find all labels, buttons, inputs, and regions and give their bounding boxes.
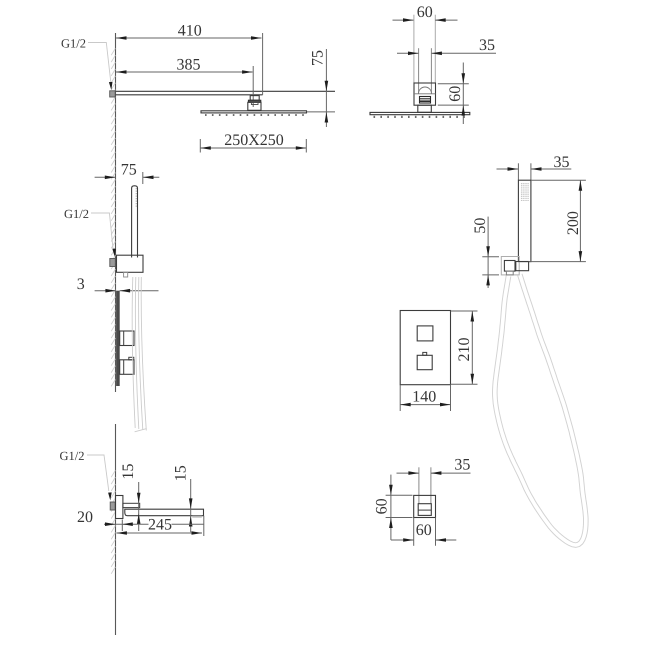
svg-text:50: 50	[472, 218, 489, 234]
svg-text:20: 20	[77, 509, 93, 526]
svg-text:35: 35	[554, 154, 570, 171]
svg-text:G1/2: G1/2	[61, 37, 86, 51]
svg-text:60: 60	[416, 522, 432, 539]
svg-text:210: 210	[456, 338, 473, 362]
svg-text:G1/2: G1/2	[64, 207, 89, 221]
svg-text:G1/2: G1/2	[60, 449, 85, 463]
svg-text:140: 140	[412, 388, 436, 405]
svg-text:15: 15	[172, 465, 189, 481]
svg-text:60: 60	[447, 86, 464, 102]
svg-text:60: 60	[417, 4, 433, 21]
svg-text:15: 15	[120, 464, 137, 480]
svg-text:75: 75	[121, 161, 137, 178]
svg-text:3: 3	[77, 276, 85, 293]
svg-text:245: 245	[148, 516, 172, 533]
svg-text:200: 200	[565, 211, 582, 235]
svg-text:385: 385	[177, 57, 201, 74]
svg-text:75: 75	[310, 50, 327, 66]
svg-text:35: 35	[454, 456, 470, 473]
svg-text:35: 35	[479, 37, 495, 54]
svg-text:410: 410	[178, 23, 202, 40]
svg-text:250X250: 250X250	[224, 132, 284, 149]
svg-text:60: 60	[374, 498, 391, 514]
